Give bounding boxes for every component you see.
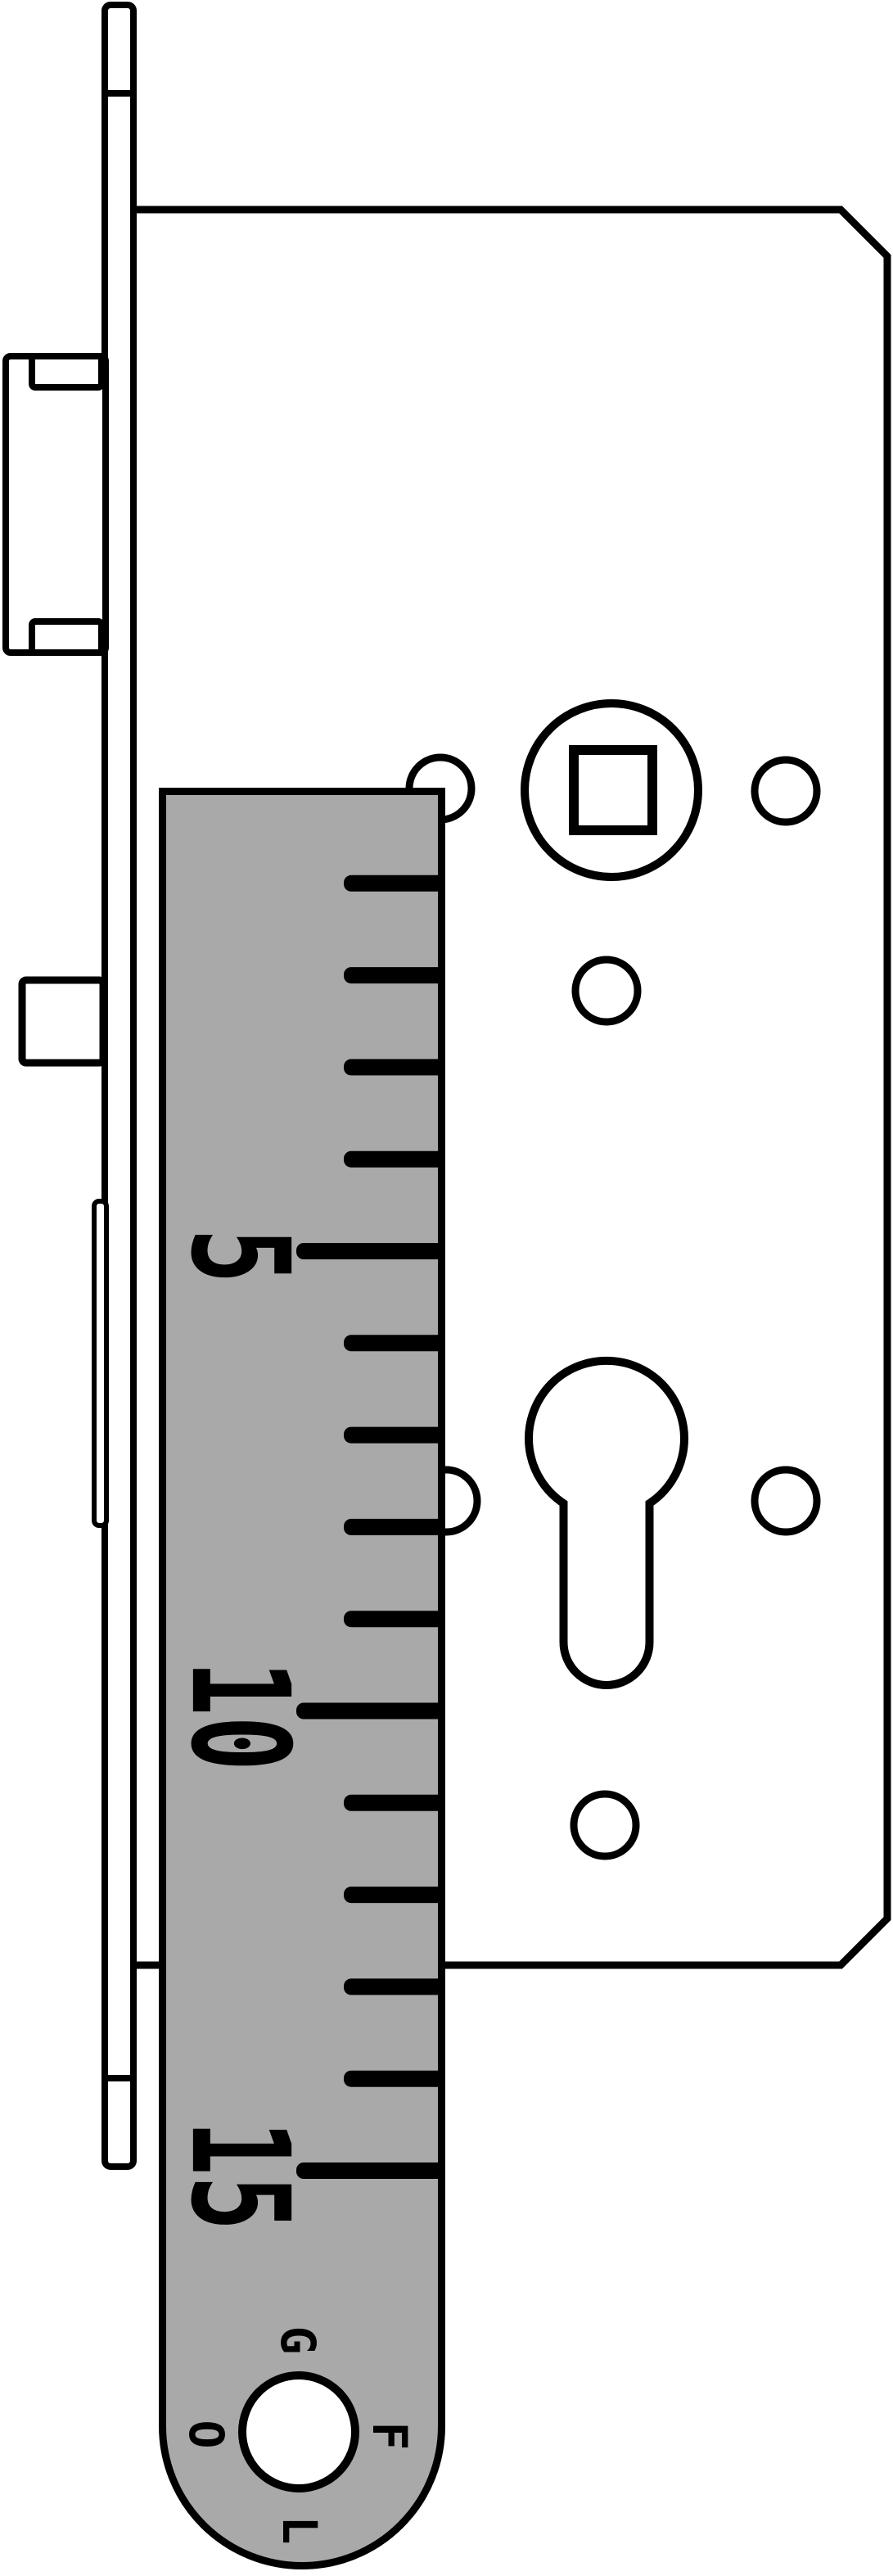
ruler-tick-13	[344, 1978, 445, 1995]
ruler: 51015 GFOL	[160, 792, 445, 2566]
hub-letter-o: O	[178, 2420, 234, 2449]
ruler-tick-8	[344, 1519, 445, 1535]
ruler-tick-6	[344, 1335, 445, 1351]
screw-hole-upper-center	[575, 960, 638, 1022]
ruler-tick-2	[344, 967, 445, 983]
hub-letter-l: L	[272, 2516, 327, 2545]
auxiliary-bolt	[22, 980, 103, 1063]
lock-ruler-illustration: Mortise door lock measured with a foldin…	[0, 0, 893, 2576]
ruler-number-15: 15	[160, 2120, 318, 2230]
ruler-tick-11	[344, 1795, 445, 1811]
ruler-tick-12	[344, 1887, 445, 1903]
ruler-tick-10	[296, 1703, 445, 1720]
spring-tab	[94, 1201, 106, 1525]
ruler-rivet-hole	[242, 2375, 355, 2488]
ruler-tick-14	[344, 2071, 445, 2087]
spindle-square	[574, 750, 652, 830]
hub-letter-f: F	[362, 2422, 417, 2451]
ruler-tick-5	[296, 1243, 445, 1259]
ruler-tick-1	[344, 875, 445, 892]
screw-hole-lower-center	[574, 1794, 636, 1856]
screw-hole-top-right	[755, 760, 817, 822]
ruler-tick-9	[344, 1611, 445, 1627]
ruler-tick-4	[344, 1151, 445, 1168]
ruler-tick-7	[344, 1427, 445, 1444]
screw-hole-mid-right	[755, 1470, 817, 1532]
ruler-number-5: 5	[160, 1228, 318, 1284]
latch-bolt-top-step	[32, 356, 101, 387]
hub-letter-g: G	[270, 2326, 326, 2355]
faceplate	[105, 5, 133, 2167]
ruler-tick-15	[296, 2162, 445, 2179]
ruler-tick-3	[344, 1059, 445, 1075]
latch-bolt	[6, 356, 106, 653]
ruler-number-10: 10	[160, 1661, 318, 1771]
latch-bolt-bottom-step	[32, 621, 101, 653]
